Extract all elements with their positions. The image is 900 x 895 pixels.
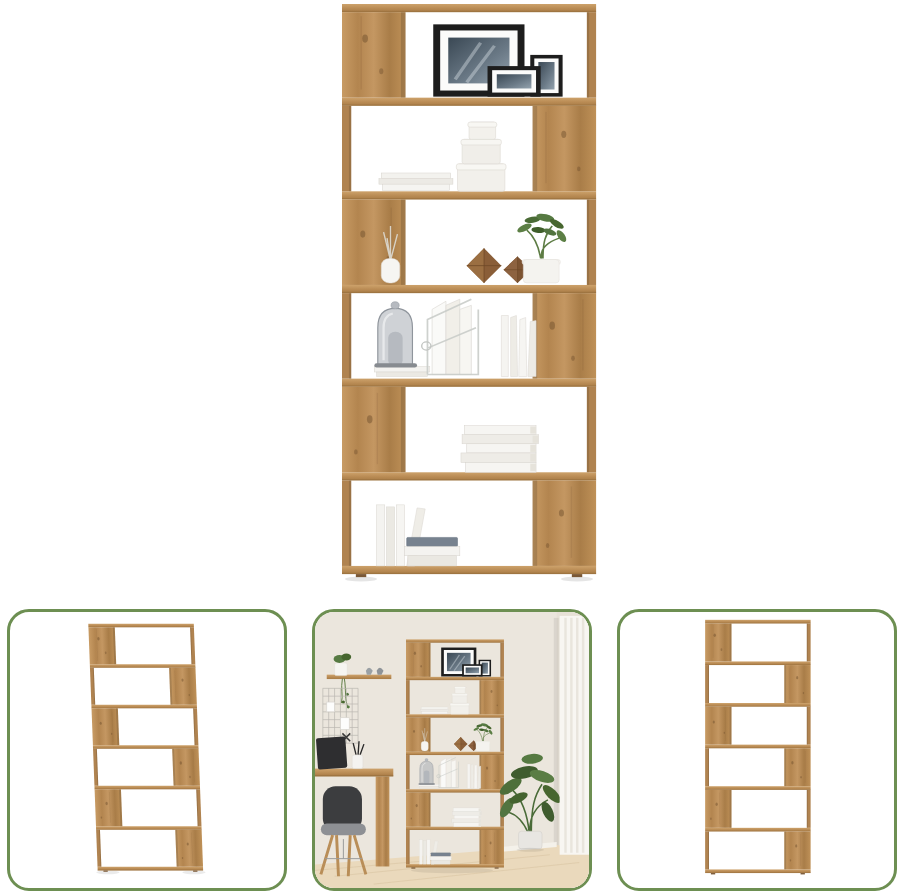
hero-image bbox=[0, 0, 900, 608]
thumbnail-row bbox=[0, 609, 900, 891]
laptop bbox=[316, 736, 347, 769]
product-image-collage bbox=[0, 0, 900, 895]
thumbnail-front-view[interactable] bbox=[617, 609, 897, 891]
zigzag-bookshelf bbox=[88, 624, 203, 872]
thumbnail-angled-graphic bbox=[10, 612, 284, 888]
thumbnail-lifestyle-graphic bbox=[315, 612, 589, 888]
thumbnail-angled-view[interactable] bbox=[7, 609, 287, 891]
curtain bbox=[560, 616, 589, 855]
hero-bookshelf-graphic bbox=[0, 0, 900, 608]
zigzag-bookshelf bbox=[705, 620, 810, 875]
zigzag-bookshelf bbox=[342, 4, 596, 577]
thumbnail-front-graphic bbox=[620, 612, 894, 888]
thumbnail-lifestyle-view[interactable] bbox=[312, 609, 592, 891]
